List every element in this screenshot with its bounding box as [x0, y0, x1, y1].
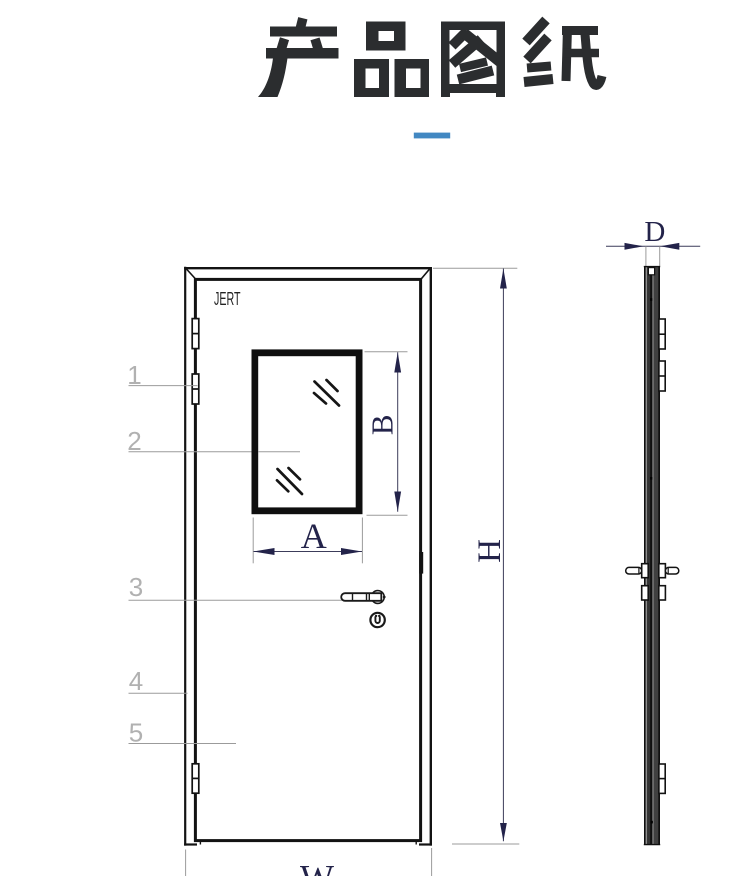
svg-text:D: D	[644, 216, 665, 248]
svg-text:4: 4	[129, 666, 143, 696]
svg-text:A: A	[301, 516, 327, 556]
svg-text:JERT: JERT	[214, 289, 241, 309]
svg-text:3: 3	[129, 572, 143, 602]
svg-text:W: W	[300, 858, 334, 876]
svg-text:B: B	[365, 414, 400, 435]
svg-text:H: H	[472, 539, 508, 563]
